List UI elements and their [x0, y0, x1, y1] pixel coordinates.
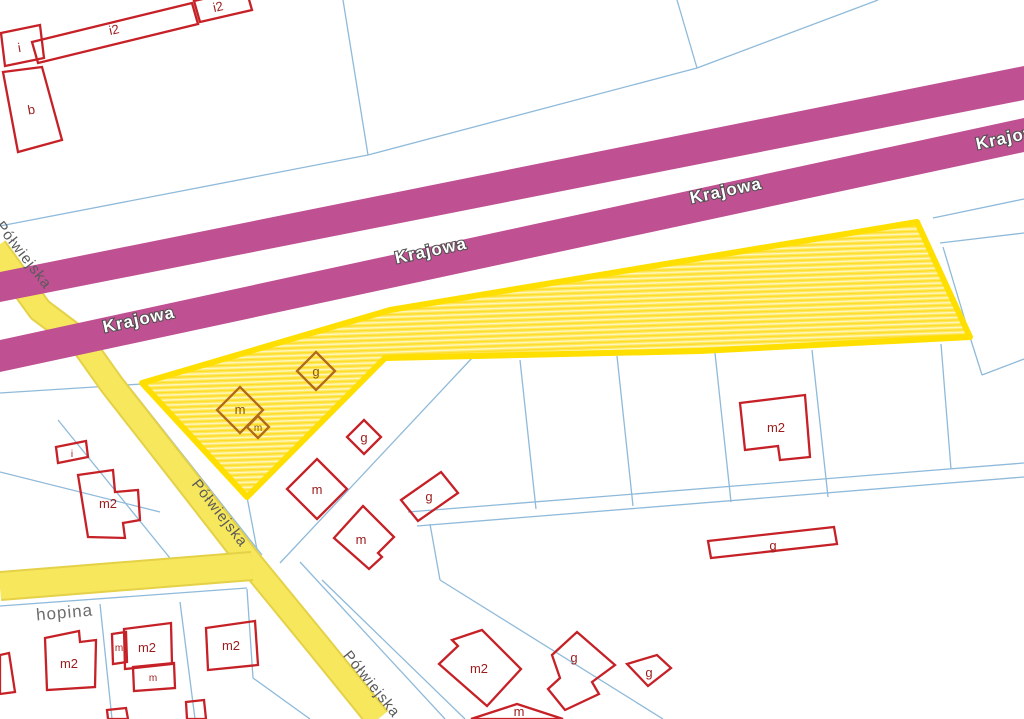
cadastral-map-svg[interactable]: i2 i2 i b g m m g m g m m2 g i m2 m2 m m… — [0, 0, 1024, 719]
label-m2-row1: m2 — [60, 656, 78, 671]
label-m-bottom-partial: m — [514, 704, 525, 719]
label-m-central: m — [312, 482, 323, 497]
label-m-row-small: m — [115, 643, 123, 654]
label-g-in-parcel: g — [312, 364, 319, 379]
label-i: i — [16, 40, 22, 55]
label-i-left: i — [71, 449, 73, 460]
label-g-bottom-irregular: g — [570, 650, 577, 665]
label-m2-row3: m2 — [222, 638, 240, 653]
label-m2-right: m2 — [767, 420, 785, 435]
label-m2-left: m2 — [99, 496, 117, 511]
building-partial-left-edge[interactable] — [0, 653, 15, 694]
label-m2-bottom-diamond: m2 — [470, 661, 488, 676]
building-i[interactable] — [1, 25, 44, 66]
label-g-bar-right: g — [769, 538, 776, 553]
label-m2-row2: m2 — [138, 640, 156, 655]
street-label-chopina: hopina — [35, 601, 94, 625]
label-m-small-in-parcel: m — [254, 423, 262, 434]
building-partial-bottom-2[interactable] — [186, 700, 206, 719]
label-m-row-below: m — [149, 673, 157, 684]
label-g-central-rect: g — [425, 489, 432, 504]
label-m-central-poly: m — [356, 532, 367, 547]
road-chopina[interactable] — [0, 566, 252, 586]
label-b: b — [26, 102, 36, 118]
label-g-bottom-quad: g — [645, 665, 652, 680]
label-i2-bar: i2 — [107, 21, 120, 38]
label-i2-top: i2 — [211, 0, 224, 15]
selected-parcel-highlight[interactable] — [142, 222, 970, 497]
building-g-bottom-irregular[interactable] — [548, 632, 615, 710]
building-partial-bottom-1[interactable] — [107, 708, 128, 719]
label-g-central: g — [360, 430, 367, 445]
label-m-in-parcel: m — [235, 402, 246, 417]
map-canvas[interactable]: i2 i2 i b g m m g m g m m2 g i m2 m2 m m… — [0, 0, 1024, 719]
